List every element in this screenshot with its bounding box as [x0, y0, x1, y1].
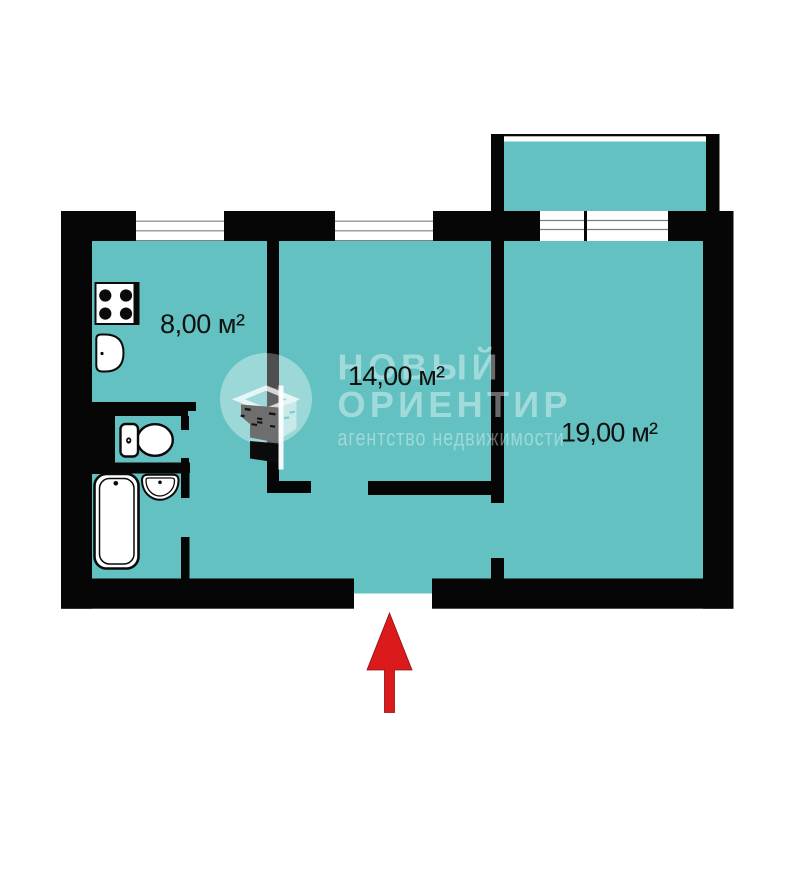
- svg-text:19,00 м²: 19,00 м²: [561, 418, 658, 448]
- svg-text:14,00 м²: 14,00 м²: [348, 361, 445, 391]
- svg-text:8,00 м²: 8,00 м²: [160, 309, 245, 339]
- svg-text:агентство недвижимости: агентство недвижимости: [338, 425, 564, 451]
